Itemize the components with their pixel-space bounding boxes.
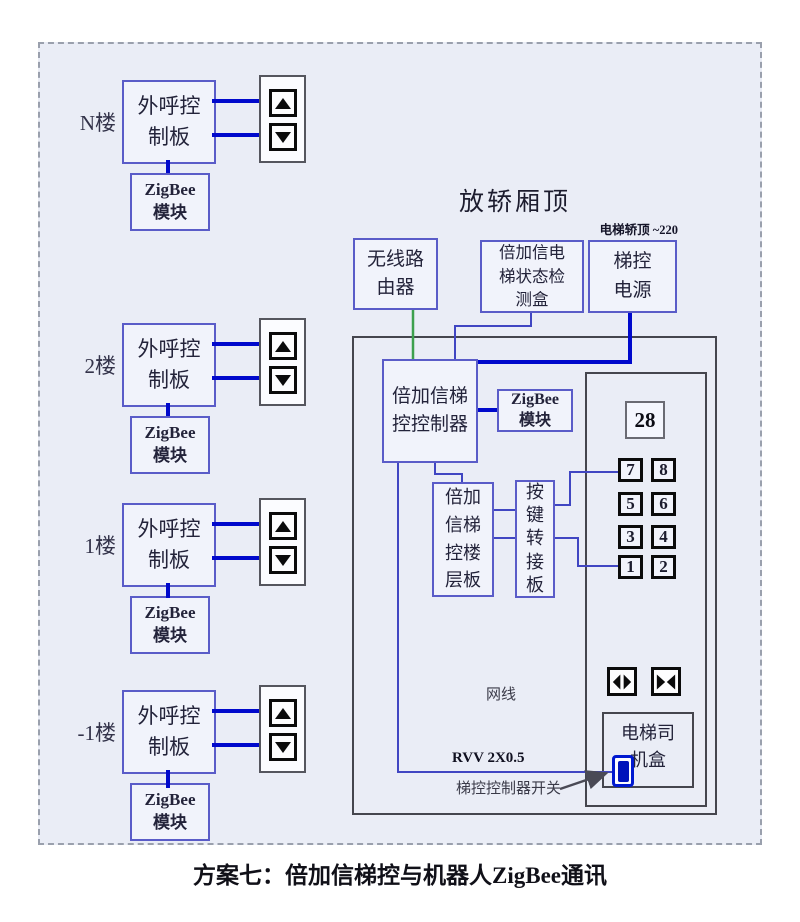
car-top-power-note: 电梯轿顶 ~220 [570, 219, 678, 238]
floor-label: 1楼 [46, 530, 116, 560]
floor-unit-n: N楼 外呼控 制板 ZigBee 模块 [0, 75, 320, 240]
hall-button-panel [259, 75, 306, 163]
up-arrow-icon [275, 341, 291, 352]
floor-label: N楼 [46, 107, 116, 137]
elevator-controller-box: 倍加信梯 控控制器 [382, 359, 478, 463]
up-arrow-button [269, 699, 297, 727]
up-arrow-icon [275, 521, 291, 532]
rvv-cable-label: RVV 2X0.5 [452, 750, 562, 767]
car-top-title: 放轿厢顶 [430, 182, 600, 218]
floor-unit-1: 1楼 外呼控 制板 ZigBee 模块 [0, 498, 320, 663]
down-arrow-button [269, 546, 297, 574]
hall-call-board-box: 外呼控 制板 [122, 503, 216, 587]
floor-button-6: 6 [651, 492, 676, 516]
hall-call-board-box: 外呼控 制板 [122, 80, 216, 164]
floor-label: -1楼 [46, 717, 116, 747]
floor-button-7: 7 [618, 458, 643, 482]
zigbee-module-box: ZigBee 模块 [130, 596, 210, 654]
floor-button-1: 1 [618, 555, 643, 579]
door-open-button [607, 667, 637, 696]
floor-button-8: 8 [651, 458, 676, 482]
door-open-icon [611, 672, 633, 692]
key-adapter-board-box: 按 键 转 接 板 [515, 480, 555, 598]
up-arrow-button [269, 89, 297, 117]
down-arrow-icon [275, 555, 291, 566]
down-arrow-icon [275, 742, 291, 753]
wireless-router-box: 无线路 由器 [353, 238, 438, 310]
controller-switch [612, 755, 634, 787]
down-arrow-icon [275, 375, 291, 386]
elevator-control-power-box: 梯控 电源 [588, 240, 677, 313]
hall-button-panel [259, 685, 306, 773]
down-arrow-button [269, 733, 297, 761]
zigbee-module-box: ZigBee 模块 [130, 783, 210, 841]
up-arrow-icon [275, 708, 291, 719]
up-arrow-button [269, 332, 297, 360]
elevator-status-detector-box: 倍加信电 梯状态检 测盒 [480, 240, 584, 313]
down-arrow-button [269, 123, 297, 151]
floor-button-5: 5 [618, 492, 643, 516]
floor-unit-2: 2楼 外呼控 制板 ZigBee 模块 [0, 318, 320, 483]
floor-button-3: 3 [618, 525, 643, 549]
hall-button-panel [259, 318, 306, 406]
network-cable-label: 网线 [486, 683, 546, 704]
door-close-icon [655, 672, 677, 692]
up-arrow-icon [275, 98, 291, 109]
zigbee-module-box: ZigBee 模块 [130, 173, 210, 231]
floor-button-4: 4 [651, 525, 676, 549]
floor-label: 2楼 [46, 350, 116, 380]
zigbee-module-box: ZigBee 模块 [497, 389, 573, 432]
controller-switch-label: 梯控控制器开关 [456, 777, 576, 798]
floor-button-2: 2 [651, 555, 676, 579]
floor-display: 28 [625, 401, 665, 439]
down-arrow-icon [275, 132, 291, 143]
hall-call-board-box: 外呼控 制板 [122, 323, 216, 407]
controller-switch-toggle [618, 761, 629, 782]
down-arrow-button [269, 366, 297, 394]
floor-unit-b1: -1楼 外呼控 制板 ZigBee 模块 [0, 685, 320, 850]
floor-board-box: 倍加 信梯 控楼 层板 [432, 482, 494, 597]
up-arrow-button [269, 512, 297, 540]
hall-button-panel [259, 498, 306, 586]
hall-call-board-box: 外呼控 制板 [122, 690, 216, 774]
scheme-caption: 方案七：倍加信梯控与机器人ZigBee通讯 [0, 856, 800, 890]
zigbee-module-box: ZigBee 模块 [130, 416, 210, 474]
scheme-diagram: N楼 外呼控 制板 ZigBee 模块 2楼 外呼控 制板 ZigBee 模块 … [0, 0, 800, 922]
door-close-button [651, 667, 681, 696]
